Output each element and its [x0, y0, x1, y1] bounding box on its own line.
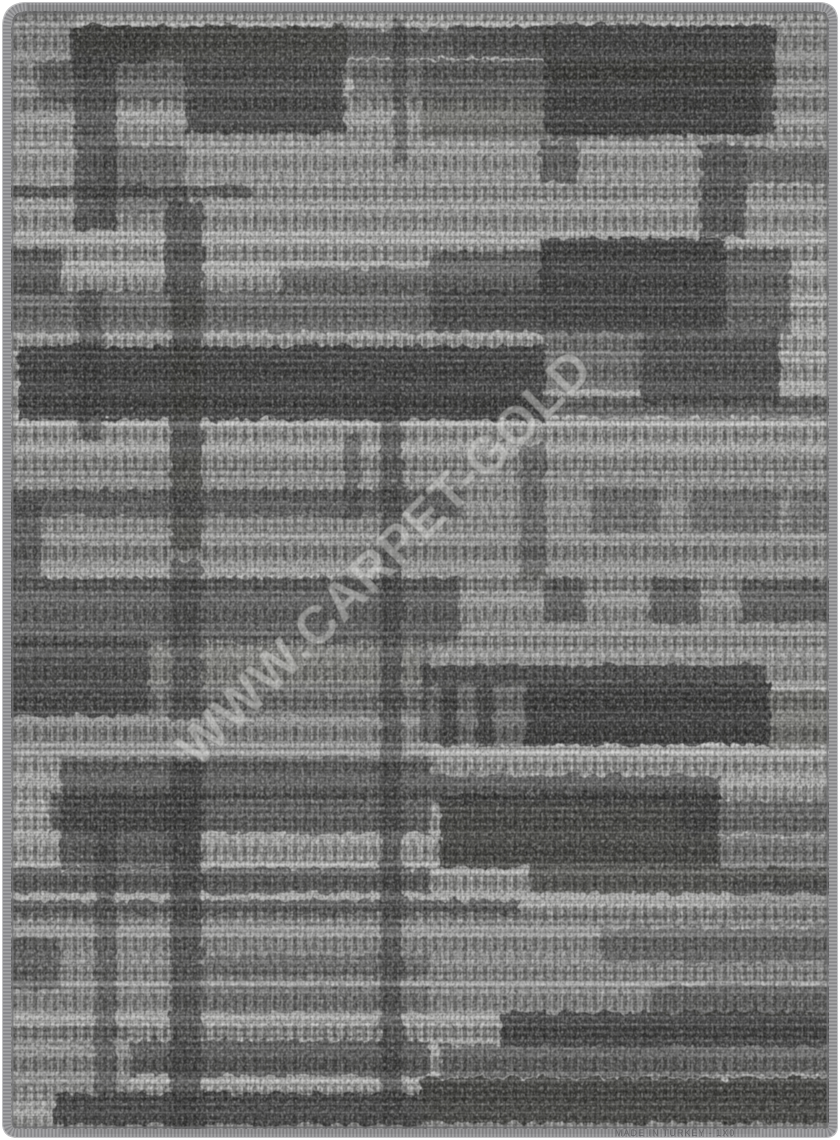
- svg-text:MADE IN TURKEY - 1X0: MADE IN TURKEY - 1X0: [615, 1128, 735, 1138]
